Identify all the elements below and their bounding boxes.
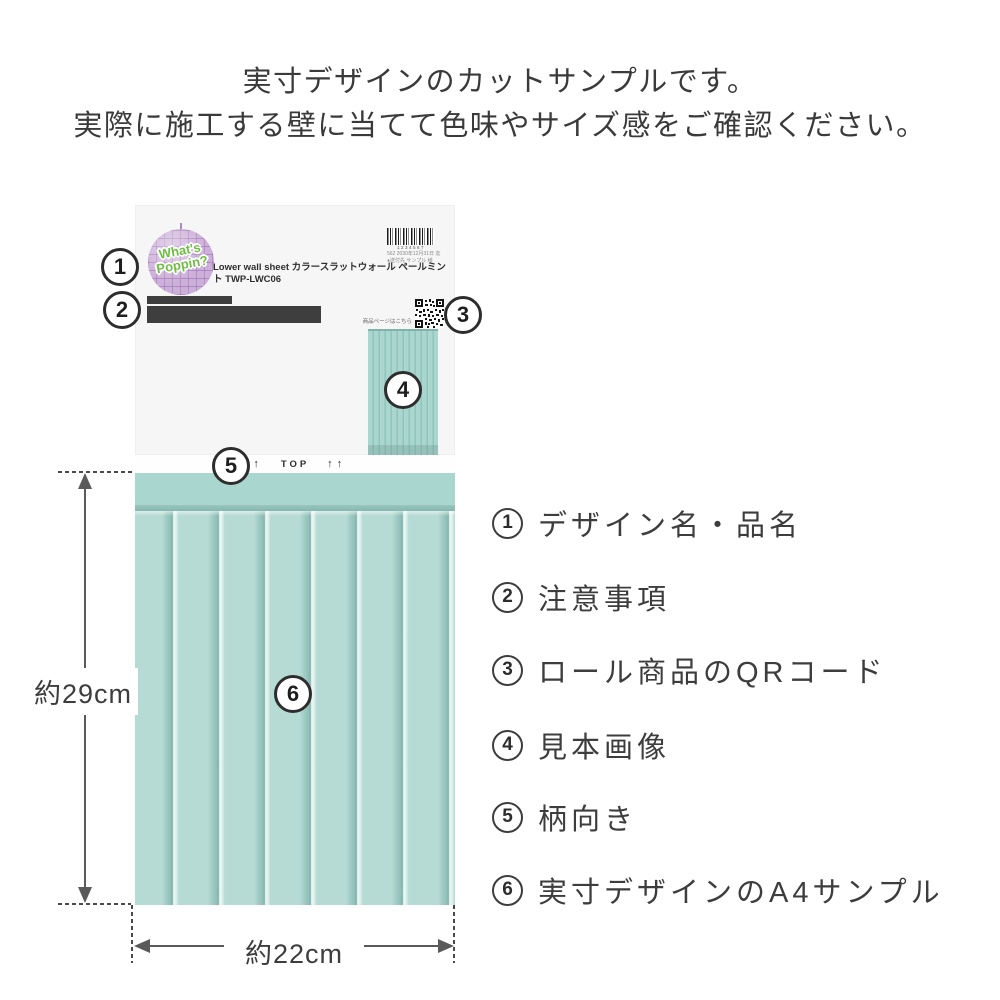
legend-item-5: 5 柄向き [492,800,637,834]
barcode-note: 562 2030年12月31日 迄 ●送付先 サンプル 様 [387,251,447,264]
legend-label-4: 見本画像 [538,724,670,766]
legend-num-4: 4 [492,730,523,761]
height-dim-arrow-down-icon [78,887,92,903]
legend-num-5: 5 [492,802,523,833]
legend-num-6: 6 [492,875,523,906]
barcode-note-line-1: 562 2030年12月31日 迄 [387,251,447,258]
legend-item-3: 3 ロール商品のQRコード [492,653,887,687]
marker-5: 5 [212,447,250,485]
redacted-text-bar-2 [147,306,321,323]
barcode-digits: 1234567 [387,245,435,250]
page-header: 実寸デザインのカットサンプルです。 実際に施工する壁に当てて色味やサイズ感をご確… [0,60,1000,148]
marker-6: 6 [274,675,312,713]
height-dim-top-tick [58,471,133,473]
legend-label-3: ロール商品のQRコード [538,649,887,691]
product-title: Lower wall sheet カラースラットウォール ペールミント TWP-… [213,262,449,286]
legend-item-1: 1 デザイン名・品名 [492,506,802,540]
legend-num-1: 1 [492,508,523,539]
a4-sample-top-band [135,473,455,505]
orientation-strip: ↑↑ TOP ↑↑ [135,455,455,473]
legend-num-3: 3 [492,655,523,686]
height-dim-arrow-up-icon [78,473,92,489]
marker-2: 2 [103,291,141,329]
legend-label-5: 柄向き [538,796,637,838]
legend-item-6: 6 実寸デザインのA4サンプル [492,873,944,907]
header-line-1: 実寸デザインのカットサンプルです。 [0,60,1000,104]
redacted-text-bar-1 [147,296,232,304]
orientation-arrows-right-icon: ↑↑ [327,458,346,470]
legend-num-2: 2 [492,582,523,613]
orientation-top-label: TOP [281,459,309,470]
qr-code-icon [415,299,444,328]
header-line-2: 実際に施工する壁に当てて色味やサイズ感をご確認ください。 [0,104,1000,148]
barcode-icon [387,228,435,245]
legend-label-6: 実寸デザインのA4サンプル [538,869,944,911]
height-dim-bottom-tick [58,903,131,905]
legend-label-2: 注意事項 [538,576,670,618]
marker-1: 1 [101,248,139,286]
marker-4: 4 [384,371,422,409]
width-dim-label: 約22cm [224,930,364,973]
barcode-note-line-2: ●送付先 サンプル 様 [387,258,447,265]
height-dim-label: 約29cm [28,668,138,715]
width-dim-arrow-left-icon [134,939,150,953]
legend-item-4: 4 見本画像 [492,728,670,762]
width-dim-right-tick [453,905,455,963]
width-dim-left-tick [131,905,133,963]
width-dim-arrow-right-icon [438,939,454,953]
qr-caption: 商品ページはこちら [360,317,412,325]
marker-3: 3 [444,296,482,334]
legend-label-1: デザイン名・品名 [538,502,802,544]
legend-item-2: 2 注意事項 [492,580,670,614]
